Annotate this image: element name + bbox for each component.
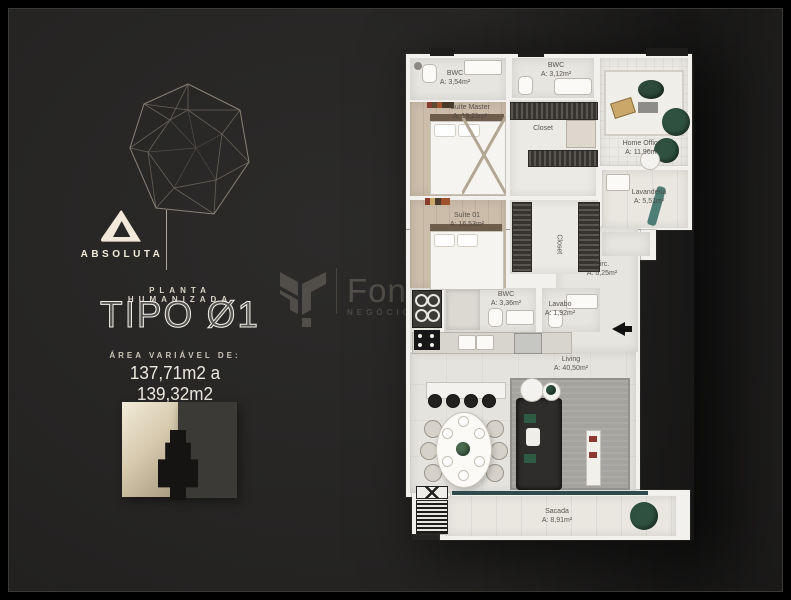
wardrobe bbox=[510, 102, 598, 120]
burner bbox=[418, 334, 422, 338]
trellis-decor bbox=[462, 116, 506, 194]
room-label-suite01: Suíte 01 A: 16,53m² bbox=[427, 212, 507, 229]
washer-drum bbox=[427, 294, 440, 307]
wardrobe bbox=[512, 202, 532, 272]
burner bbox=[430, 343, 434, 347]
burner bbox=[418, 343, 422, 347]
sofa-cushion bbox=[524, 454, 536, 463]
laptop bbox=[638, 102, 658, 113]
plate bbox=[442, 428, 453, 439]
console-decor bbox=[589, 452, 597, 458]
entrance-arrow-tail bbox=[625, 326, 632, 332]
shaft-vent bbox=[646, 48, 688, 56]
plan-title: TIPO Ø1 bbox=[85, 294, 275, 336]
stool bbox=[428, 394, 442, 408]
shower-head bbox=[414, 62, 422, 70]
balcony-door-track bbox=[452, 491, 648, 495]
sofa-cushion bbox=[524, 414, 536, 423]
dishwasher bbox=[514, 333, 542, 354]
office-chair bbox=[638, 80, 664, 99]
logo-divider bbox=[166, 210, 167, 270]
toilet bbox=[488, 308, 503, 327]
shaft-vent bbox=[518, 50, 544, 57]
plant-icon bbox=[546, 385, 556, 395]
ac-condenser bbox=[416, 486, 448, 499]
grill-vent bbox=[416, 500, 448, 534]
room-label-living: Living A: 40,50m² bbox=[531, 356, 611, 373]
sink bbox=[476, 335, 494, 350]
room-label-lavabo: Lavabo A: 1,92m² bbox=[520, 301, 600, 318]
room-label-sacada: Sacada A: 8,91m² bbox=[517, 508, 597, 525]
brand-wordmark: ABSOLUTA bbox=[72, 249, 172, 260]
room-label-closet-master: Closet bbox=[503, 125, 583, 134]
area-range-value: 137,71m2 a 139,32m2 bbox=[90, 363, 261, 405]
balcony-plant-icon bbox=[630, 502, 658, 530]
plate bbox=[474, 456, 485, 467]
watermark-name: Fon bbox=[347, 272, 407, 310]
room-label-circ: Circ. A: 5,25m² bbox=[562, 261, 642, 278]
floorplan: BWC A: 3,54m² BWC A: 3,12m² Suíte Master… bbox=[406, 54, 692, 542]
pillow bbox=[434, 124, 456, 137]
room-circ-floor-ext bbox=[602, 232, 650, 256]
burner bbox=[430, 334, 434, 338]
plate bbox=[442, 456, 453, 467]
centerpiece-plant-icon bbox=[456, 442, 470, 456]
watermark-monogram-icon bbox=[278, 270, 332, 328]
stool bbox=[482, 394, 496, 408]
plate bbox=[458, 470, 469, 481]
washer-drum bbox=[427, 309, 440, 322]
plant-icon bbox=[662, 108, 690, 136]
room-label-lavanderia: Lavanderia A: 5,51m² bbox=[609, 189, 689, 206]
bathtub bbox=[554, 78, 592, 95]
entrance-arrow-icon bbox=[612, 322, 625, 336]
stool bbox=[464, 394, 478, 408]
pillow bbox=[457, 234, 478, 247]
room-label-home-office: Home Office A: 11,96m² bbox=[602, 140, 682, 157]
room-label-bwc-master: BWC A: 3,54m² bbox=[415, 70, 495, 87]
room-label-suite-master: Suíte Master A: 19,21m² bbox=[430, 104, 510, 121]
room-label-closet-suite: Closet bbox=[554, 204, 563, 284]
pillow bbox=[434, 234, 455, 247]
plate bbox=[474, 428, 485, 439]
watermark-divider bbox=[336, 268, 337, 314]
shaft-vent bbox=[430, 48, 454, 56]
stool bbox=[446, 394, 460, 408]
dining-chair bbox=[490, 442, 508, 460]
area-variable-label: ÁREA VARIÁVEL DE: bbox=[95, 351, 255, 360]
sofa-throw bbox=[526, 428, 540, 446]
coffee-table bbox=[520, 378, 544, 402]
sink bbox=[458, 335, 476, 350]
wardrobe bbox=[528, 150, 598, 167]
absoluta-logo-icon bbox=[101, 206, 141, 248]
cooktop bbox=[414, 330, 440, 350]
shelf-decor bbox=[425, 198, 450, 205]
plate bbox=[458, 416, 469, 427]
console-decor bbox=[589, 436, 597, 442]
room-label-bwc2: BWC A: 3,12m² bbox=[516, 62, 596, 79]
